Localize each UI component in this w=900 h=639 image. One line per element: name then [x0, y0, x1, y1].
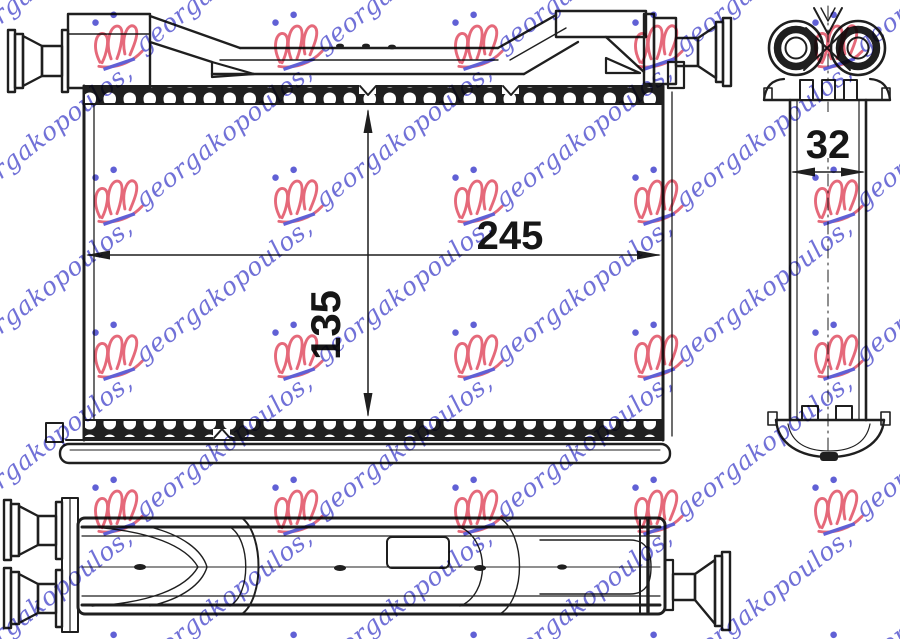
front-top-duct: [68, 11, 646, 88]
dimension-height: 135: [302, 109, 373, 417]
bottom-view-detail-rect: [387, 537, 449, 568]
bottom-view: [4, 498, 730, 632]
front-left-pipe-fitting: [8, 30, 68, 92]
dimension-height-label: 135: [302, 290, 349, 360]
bottom-fin-band: [84, 420, 663, 438]
side-pipe-ports: [769, 21, 885, 75]
dimension-width: 245: [86, 214, 661, 260]
side-bottom-cap: [768, 406, 890, 461]
front-right-pipe-fitting: [644, 14, 731, 88]
dimension-depth: 32: [791, 112, 865, 177]
dimension-width-label: 245: [477, 214, 544, 258]
front-view: 245 135: [8, 11, 731, 463]
bottom-left-pipe-fittings: [4, 498, 78, 632]
technical-drawing: 245 135: [0, 0, 900, 639]
dimension-depth-label: 32: [806, 123, 851, 167]
bottom-right-pipe-fitting: [665, 552, 730, 630]
catalog-part-drawing: 245 135: [0, 0, 900, 639]
side-view: 32: [764, 6, 890, 462]
